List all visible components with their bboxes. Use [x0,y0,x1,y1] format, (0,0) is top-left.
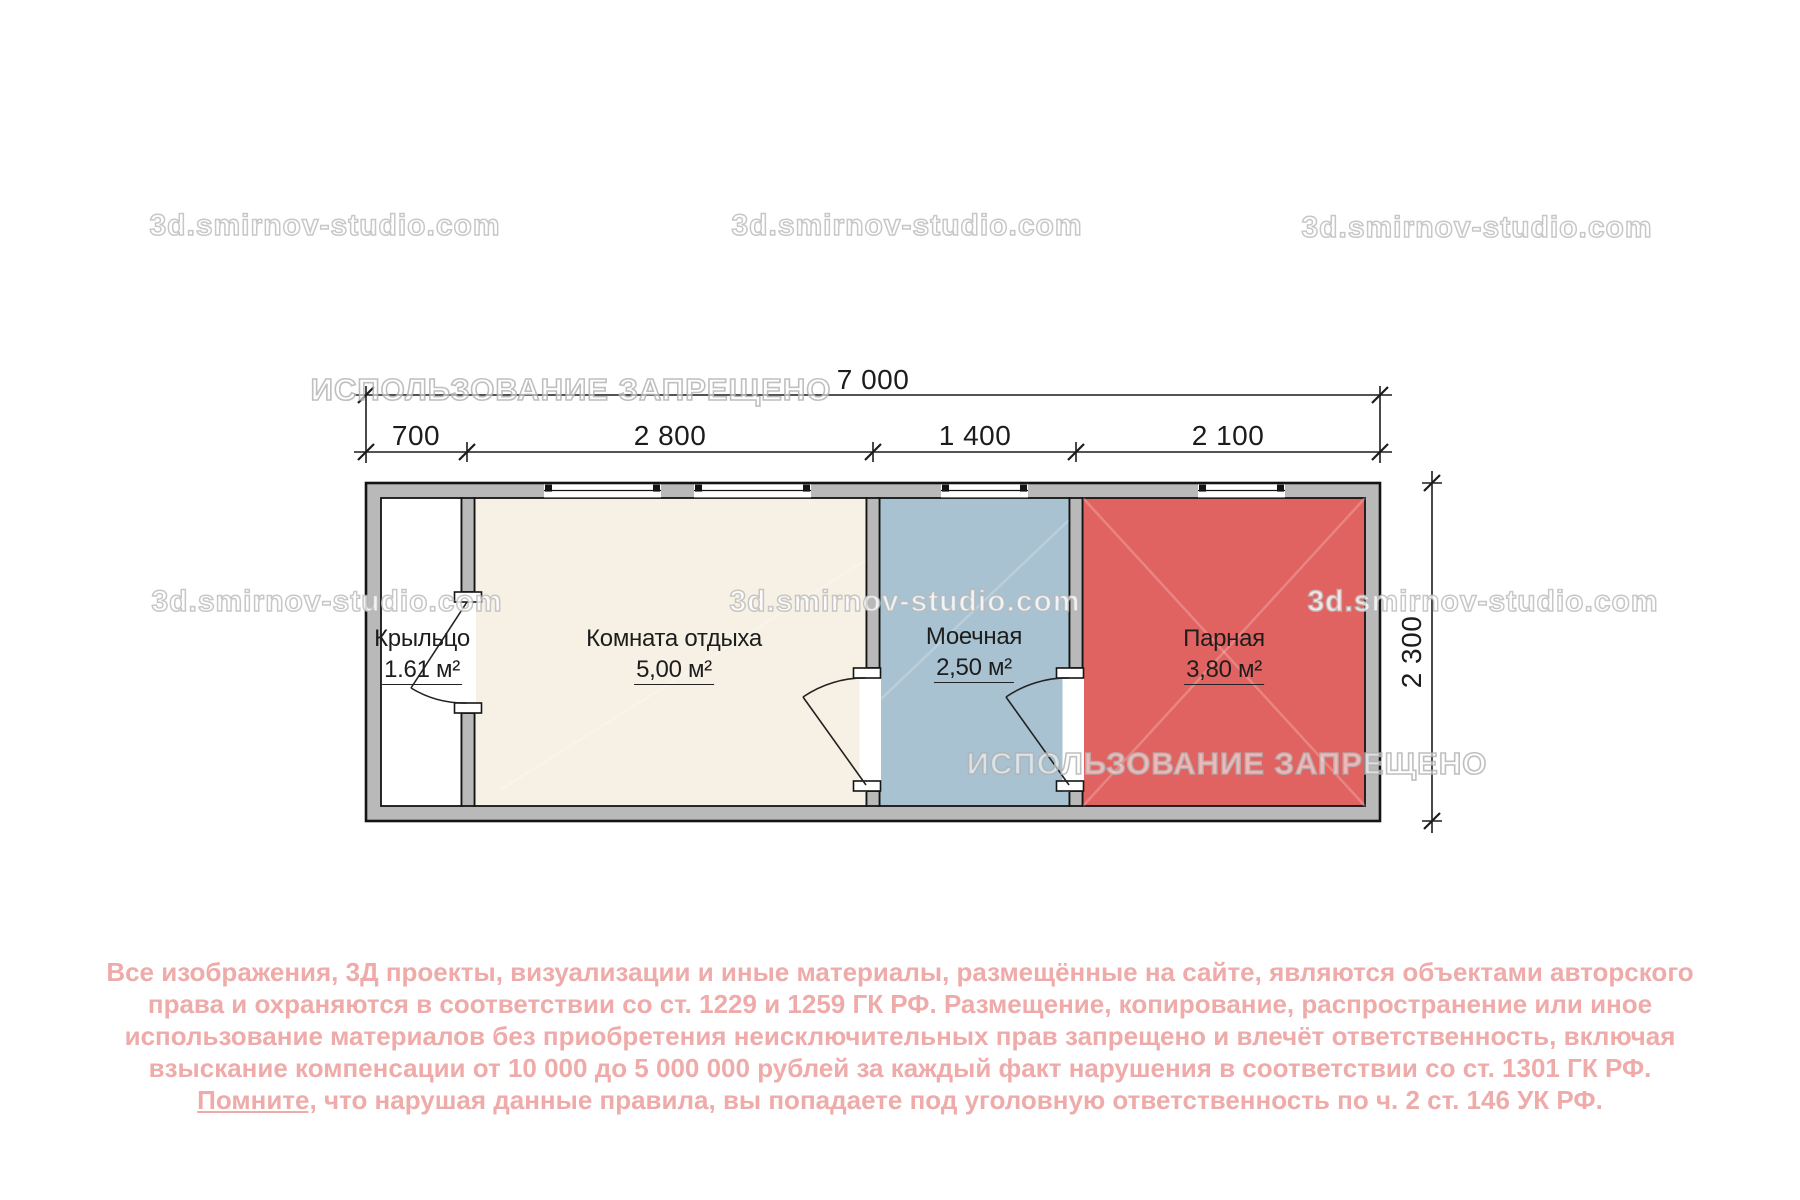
watermark-brand: 3d.smirnov-studio.com [731,209,1082,243]
disclaimer-underlined-word: Помните, [197,1085,317,1115]
room-name: Парная [1183,624,1265,653]
dim-segment-2100: 2 100 [1192,420,1265,452]
disclaimer-line: права и охраняются в соответствии со ст.… [0,988,1800,1020]
watermark-brand: 3d.smirnov-studio.com [151,585,502,619]
room-area: 1.61 м² [374,655,470,684]
disclaimer-line: использование материалов без приобретени… [0,1020,1800,1052]
copyright-disclaimer: Все изображения, 3Д проекты, визуализаци… [0,956,1800,1116]
watermark-forbidden: ИСПОЛЬЗОВАНИЕ ЗАПРЕЩЕНО [311,372,832,408]
dim-segment-1400: 1 400 [939,420,1012,452]
room-area: 3,80 м² [1183,655,1265,684]
dim-segment-2800: 2 800 [634,420,707,452]
room-name: Моечная [926,622,1022,651]
room-label-washing: Моечная 2,50 м² [926,622,1022,682]
room-name: Комната отдыха [586,624,762,653]
disclaimer-line: Помните, что нарушая данные правила, вы … [0,1084,1800,1116]
room-label-steam: Парная 3,80 м² [1183,624,1265,684]
page: { "watermark": { "brand": "3d.smirnov-st… [0,0,1800,1200]
dim-total-width: 7 000 [837,364,910,396]
dim-height: 2 300 [1396,616,1428,689]
watermark-brand: 3d.smirnov-studio.com [1307,585,1658,619]
room-name: Крыльцо [374,624,470,653]
room-area: 2,50 м² [926,653,1022,682]
disclaimer-line: взыскание компенсации от 10 000 до 5 000… [0,1052,1800,1084]
disclaimer-line: Все изображения, 3Д проекты, визуализаци… [0,956,1800,988]
room-area: 5,00 м² [586,655,762,684]
watermark-brand: 3d.smirnov-studio.com [729,585,1080,619]
room-label-rest: Комната отдыха 5,00 м² [586,624,762,684]
dim-segment-700: 700 [392,420,440,452]
room-label-porch: Крыльцо 1.61 м² [374,624,470,684]
watermark-brand: 3d.smirnov-studio.com [149,209,500,243]
watermark-brand: 3d.smirnov-studio.com [1301,211,1652,245]
disclaimer-line-rest: что нарушая данные правила, вы попадаете… [324,1085,1603,1115]
watermark-forbidden: ИСПОЛЬЗОВАНИЕ ЗАПРЕЩЕНО [967,746,1488,782]
